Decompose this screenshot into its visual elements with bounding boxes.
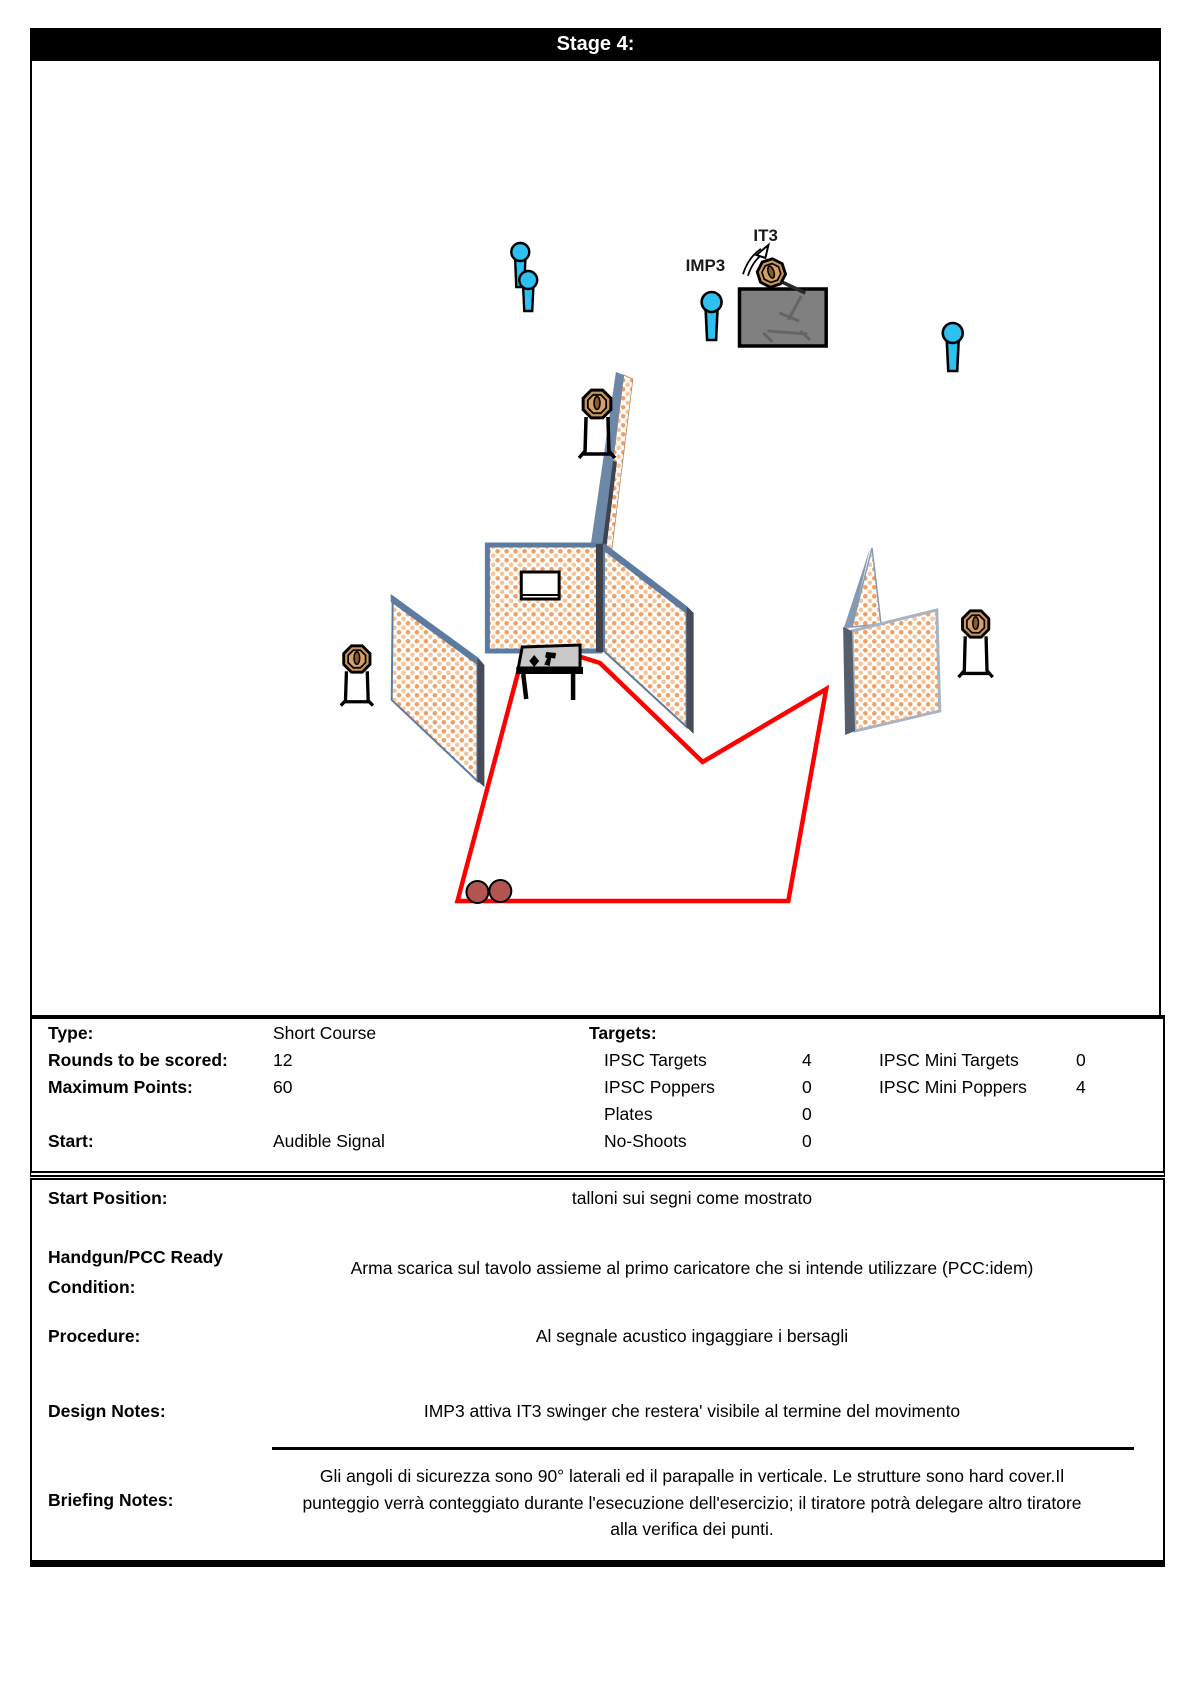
start-position-label: Start Position:	[48, 1188, 168, 1209]
hardcover-wall-far-right	[843, 548, 940, 735]
ipsc-mini-targets-count: 0	[1076, 1047, 1086, 1074]
max-points-label: Maximum Points:	[48, 1074, 193, 1101]
mini-popper-2	[519, 271, 537, 311]
briefing-notes-value: Gli angoli di sicurezza sono 90° lateral…	[292, 1463, 1092, 1543]
ipsc-poppers-count: 0	[802, 1074, 812, 1101]
plates-label: Plates	[604, 1101, 653, 1128]
type-value: Short Course	[273, 1020, 376, 1047]
stats-row-start: Start: Audible Signal No-Shoots 0	[32, 1128, 1163, 1155]
ipsc-mini-targets-label: IPSC Mini Targets	[879, 1047, 1019, 1074]
swinger-mechanism-box	[739, 276, 826, 346]
no-shoots-label: No-Shoots	[604, 1128, 687, 1155]
course-boundary-line	[457, 657, 826, 901]
ipsc-mini-poppers-count: 4	[1076, 1074, 1086, 1101]
rounds-label: Rounds to be scored:	[48, 1047, 228, 1074]
start-value: Audible Signal	[273, 1128, 385, 1155]
stage-briefing-page: { "page": { "title": "Stage 4:" }, "diag…	[0, 0, 1191, 1684]
stage-stats-table: Type: Short Course Targets: Rounds to be…	[30, 1015, 1165, 1177]
stage-diagram: IT3 IMP3	[30, 61, 1161, 1015]
hardcover-wall-left	[391, 594, 485, 787]
start-mark-right	[489, 880, 511, 902]
start-mark-left	[466, 881, 488, 903]
stats-row-type: Type: Short Course Targets:	[32, 1020, 1163, 1047]
hardcover-wall-right	[604, 543, 694, 734]
briefing-notes-label: Briefing Notes:	[48, 1490, 173, 1511]
it3-label: IT3	[753, 226, 777, 245]
stage-briefing-table: Start Position: talloni sui segni come m…	[30, 1178, 1165, 1567]
max-points-value: 60	[273, 1074, 292, 1101]
ipsc-target-right	[959, 611, 993, 677]
ipsc-poppers-label: IPSC Poppers	[604, 1074, 715, 1101]
procedure-label: Procedure:	[48, 1326, 140, 1347]
stage-title: Stage 4:	[557, 33, 635, 56]
type-label: Type:	[48, 1020, 93, 1047]
stage-diagram-svg: IT3 IMP3	[32, 61, 1159, 1015]
design-notes-label: Design Notes:	[48, 1401, 166, 1422]
shooting-table	[516, 645, 583, 700]
procedure-value: Al segnale acustico ingaggiare i bersagl…	[247, 1326, 1137, 1347]
ready-condition-value: Arma scarica sul tavolo assieme al primo…	[247, 1258, 1137, 1279]
stats-row-plates: Plates 0	[32, 1101, 1163, 1128]
ipsc-targets-count: 4	[802, 1047, 812, 1074]
targets-header: Targets:	[589, 1020, 657, 1047]
ready-condition-label: Handgun/PCC Ready Condition:	[48, 1242, 233, 1302]
no-shoots-count: 0	[802, 1128, 812, 1155]
start-position-value: talloni sui segni come mostrato	[247, 1188, 1137, 1209]
design-notes-value: IMP3 attiva IT3 swinger che restera' vis…	[247, 1401, 1137, 1422]
ipsc-target-top	[579, 390, 615, 458]
ipsc-mini-poppers-label: IPSC Mini Poppers	[879, 1074, 1027, 1101]
hardcover-wall-center	[487, 544, 604, 652]
ipsc-target-it3-swinger	[755, 256, 788, 289]
plates-count: 0	[802, 1101, 812, 1128]
stats-row-rounds: Rounds to be scored: 12 IPSC Targets 4 I…	[32, 1047, 1163, 1074]
start-label: Start:	[48, 1128, 94, 1155]
ipsc-targets-label: IPSC Targets	[604, 1047, 707, 1074]
briefing-separator-line	[272, 1447, 1134, 1450]
mini-popper-4	[943, 323, 963, 371]
imp3-label: IMP3	[686, 256, 726, 275]
rounds-value: 12	[273, 1047, 292, 1074]
ipsc-target-left	[341, 646, 373, 706]
stage-title-bar: Stage 4:	[30, 28, 1161, 61]
mini-popper-imp3	[702, 292, 722, 340]
stats-row-max-points: Maximum Points: 60 IPSC Poppers 0 IPSC M…	[32, 1074, 1163, 1101]
